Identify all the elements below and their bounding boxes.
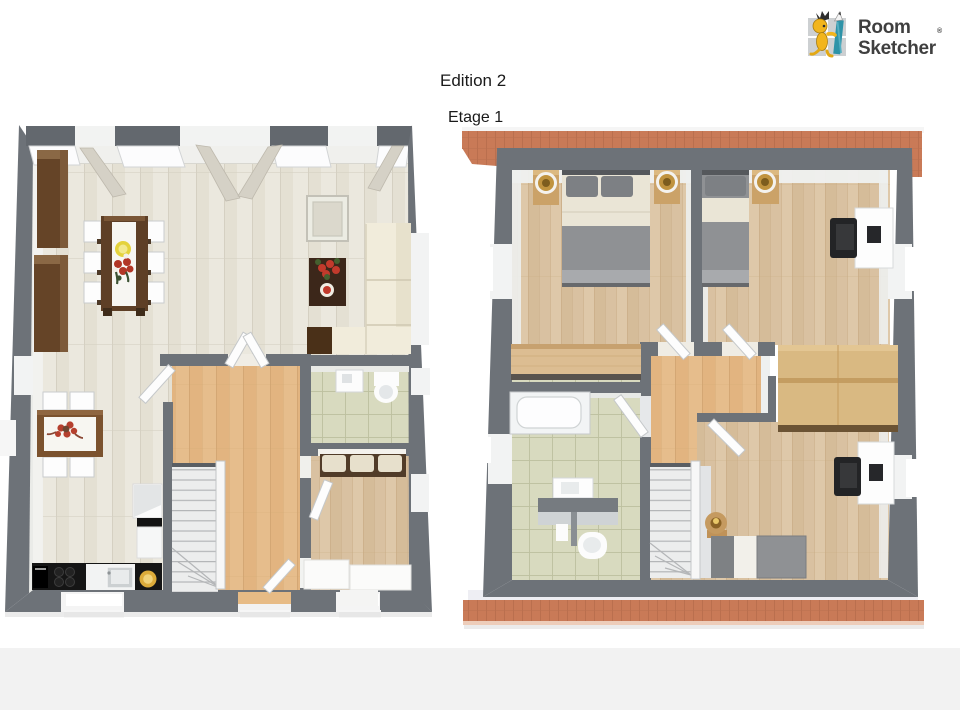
svg-text:Edition 2: Edition 2 (440, 71, 506, 90)
svg-text:®: ® (937, 27, 943, 35)
svg-text:Etage 1: Etage 1 (448, 109, 503, 126)
svg-text:Sketcher: Sketcher (858, 38, 937, 59)
svg-text:Room: Room (858, 17, 911, 38)
